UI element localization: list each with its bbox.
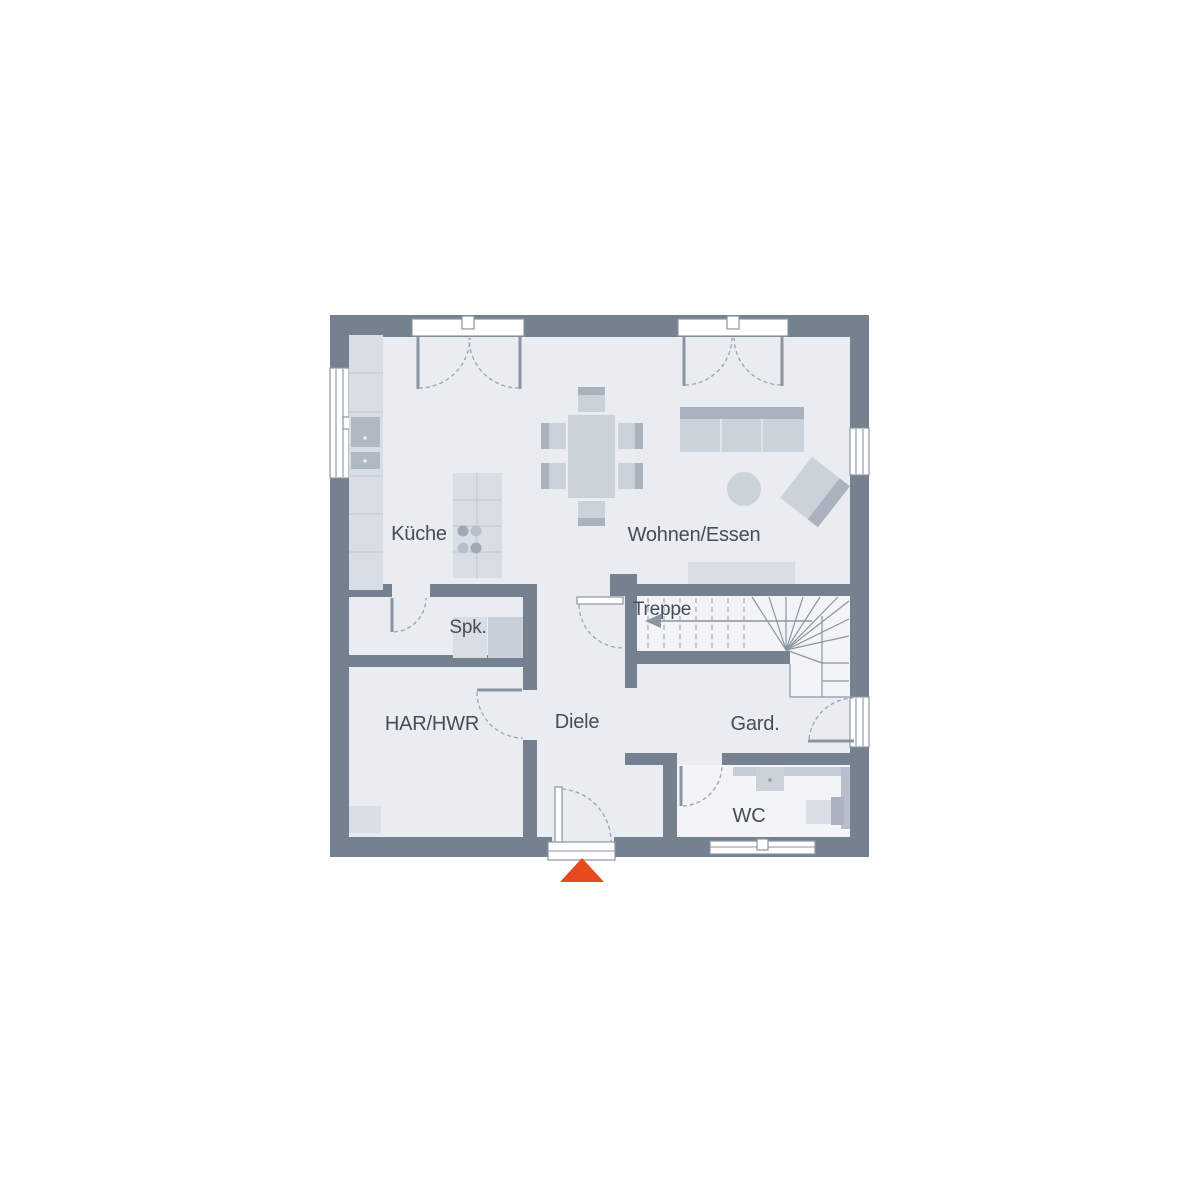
floor-plan-drawing: Küche Wohnen/Essen Treppe Spk. HAR/HWR D… (0, 0, 1200, 1200)
wc-counter (733, 767, 845, 776)
door-leaf (555, 787, 562, 842)
window-living (850, 428, 869, 475)
dining-chair (578, 387, 605, 412)
sofa (680, 407, 804, 452)
door-handle (727, 316, 739, 329)
room-label-spk: Spk. (449, 617, 486, 638)
floor-plan-canvas: Küche Wohnen/Essen Treppe Spk. HAR/HWR D… (0, 0, 1200, 1200)
wall-kueche-bottom-right (430, 584, 537, 597)
dining-chair (578, 501, 605, 526)
window-handle (757, 839, 768, 850)
window-wc (710, 839, 815, 854)
door-handle (462, 316, 474, 329)
oven (351, 417, 380, 447)
room-label-treppe: Treppe (633, 599, 691, 620)
stairwell-lower-floor (790, 651, 850, 698)
room-label-wc: WC (733, 805, 766, 827)
room-label-gard: Gard. (730, 713, 779, 735)
wall-har-right (523, 740, 537, 837)
oven-knob (363, 436, 366, 439)
room-label-diele: Diele (555, 711, 600, 733)
appliance-knob (363, 459, 366, 462)
entrance-arrow (560, 858, 604, 882)
toilet-tank (831, 797, 844, 825)
dining-chair (618, 463, 643, 489)
sideboard (688, 562, 795, 584)
room-label-kueche: Küche (391, 523, 447, 545)
coffee-table (727, 472, 761, 506)
wall-spk-right (523, 584, 537, 690)
toilet-seat (806, 800, 831, 824)
room-label-wohnen-essen: Wohnen/Essen (628, 524, 761, 546)
door-leaf (577, 597, 623, 604)
dining-chair (618, 423, 643, 449)
sofa-back (680, 407, 804, 419)
wall-stair-top (610, 584, 850, 596)
dining-chair (541, 463, 566, 489)
sofa-seat (680, 419, 804, 452)
wall-right (850, 315, 869, 857)
room-label-har-hwr: HAR/HWR (385, 713, 479, 735)
wall-gard-wc-right (722, 753, 850, 765)
basin-drain (768, 778, 771, 781)
shelf-right (488, 617, 523, 658)
window-frame (850, 428, 869, 475)
dining-chair (541, 423, 566, 449)
wall-wc-left (663, 753, 677, 837)
dining-table (568, 415, 615, 498)
wall-stair-bottom (625, 651, 790, 664)
har-appliance (349, 806, 381, 833)
